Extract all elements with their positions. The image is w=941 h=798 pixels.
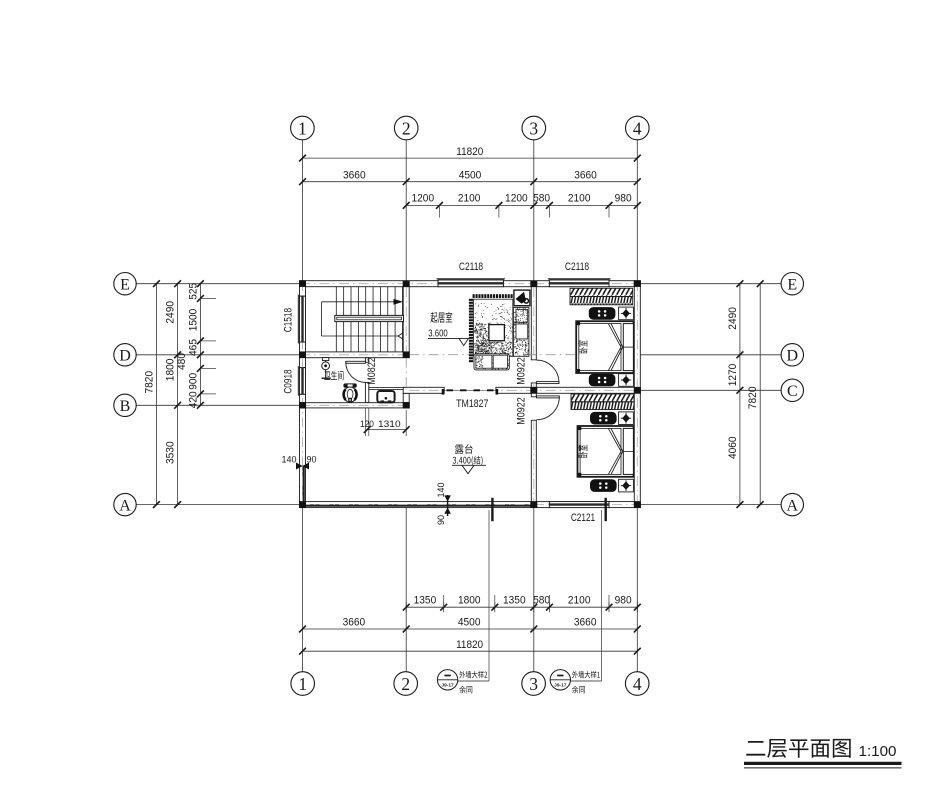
svg-text:1350: 1350: [503, 595, 526, 607]
svg-text:1:100: 1:100: [859, 743, 897, 760]
svg-text:120: 120: [360, 419, 374, 430]
svg-text:2100: 2100: [458, 192, 481, 204]
svg-text:580: 580: [533, 192, 550, 204]
svg-text:D: D: [119, 348, 131, 365]
svg-text:2490: 2490: [727, 307, 739, 330]
svg-text:3660: 3660: [574, 169, 597, 181]
svg-text:1800: 1800: [165, 359, 177, 382]
svg-text:140: 140: [436, 482, 446, 497]
svg-text:980: 980: [615, 192, 632, 204]
svg-text:90: 90: [436, 515, 446, 525]
svg-text:TM1827: TM1827: [456, 398, 488, 410]
svg-text:1: 1: [298, 118, 307, 138]
svg-text:3660: 3660: [343, 169, 366, 181]
svg-text:C0918: C0918: [283, 369, 295, 393]
svg-text:465: 465: [187, 339, 199, 356]
svg-text:480: 480: [176, 353, 188, 370]
svg-text:4: 4: [633, 674, 642, 694]
svg-text:3: 3: [529, 674, 538, 694]
svg-text:4: 4: [633, 118, 642, 138]
svg-text:2: 2: [401, 674, 410, 694]
svg-text:2490: 2490: [165, 301, 177, 324]
svg-text:2100: 2100: [568, 192, 591, 204]
svg-text:C2121: C2121: [571, 512, 595, 524]
svg-text:C2118: C2118: [459, 261, 483, 273]
svg-text:B: B: [120, 398, 131, 415]
svg-text:11820: 11820: [456, 639, 483, 651]
svg-text:C: C: [787, 383, 798, 400]
svg-text:1500: 1500: [187, 309, 199, 332]
svg-text:90: 90: [306, 455, 316, 465]
svg-text:E: E: [120, 276, 130, 293]
svg-text:4500: 4500: [459, 169, 482, 181]
svg-text:7820: 7820: [144, 371, 156, 394]
svg-text:1: 1: [298, 674, 307, 694]
svg-text:2: 2: [402, 118, 411, 138]
svg-text:1350: 1350: [414, 595, 437, 607]
svg-text:E: E: [787, 276, 797, 293]
svg-text:J9-17: J9-17: [554, 683, 567, 689]
svg-text:J9-17: J9-17: [441, 683, 454, 689]
svg-text:3.600: 3.600: [428, 328, 448, 339]
svg-text:1200: 1200: [505, 192, 528, 204]
svg-text:3660: 3660: [574, 617, 597, 629]
svg-text:11820: 11820: [456, 146, 483, 158]
svg-text:2100: 2100: [568, 595, 591, 607]
svg-text:900: 900: [187, 373, 199, 390]
svg-text:C1518: C1518: [283, 308, 295, 332]
svg-text:980: 980: [615, 595, 632, 607]
svg-text:525: 525: [187, 283, 199, 300]
svg-text:420: 420: [187, 391, 199, 408]
svg-text:A: A: [119, 497, 131, 514]
svg-text:1310: 1310: [378, 419, 401, 430]
svg-text:1200: 1200: [412, 192, 435, 204]
svg-text:M0922: M0922: [516, 397, 528, 425]
svg-text:7820: 7820: [747, 387, 759, 410]
svg-text:140: 140: [281, 455, 296, 465]
svg-text:C2118: C2118: [565, 261, 589, 273]
svg-text:M0922: M0922: [516, 357, 528, 385]
svg-text:M0822: M0822: [366, 357, 378, 385]
svg-text:3530: 3530: [165, 441, 177, 464]
svg-text:1270: 1270: [727, 364, 739, 387]
svg-text:A: A: [787, 497, 799, 514]
svg-text:3: 3: [529, 118, 538, 138]
svg-text:D: D: [787, 348, 799, 365]
svg-text:4060: 4060: [727, 436, 739, 459]
svg-text:3660: 3660: [343, 617, 366, 629]
svg-text:4500: 4500: [458, 617, 481, 629]
svg-text:580: 580: [533, 595, 550, 607]
svg-text:1800: 1800: [458, 595, 481, 607]
